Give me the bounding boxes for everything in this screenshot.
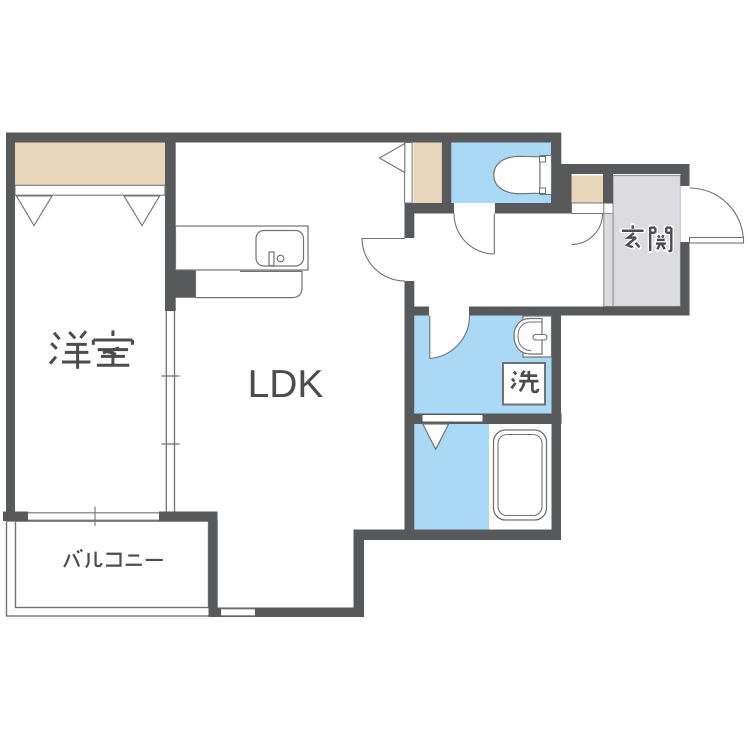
svg-text:LDK: LDK (248, 363, 324, 406)
